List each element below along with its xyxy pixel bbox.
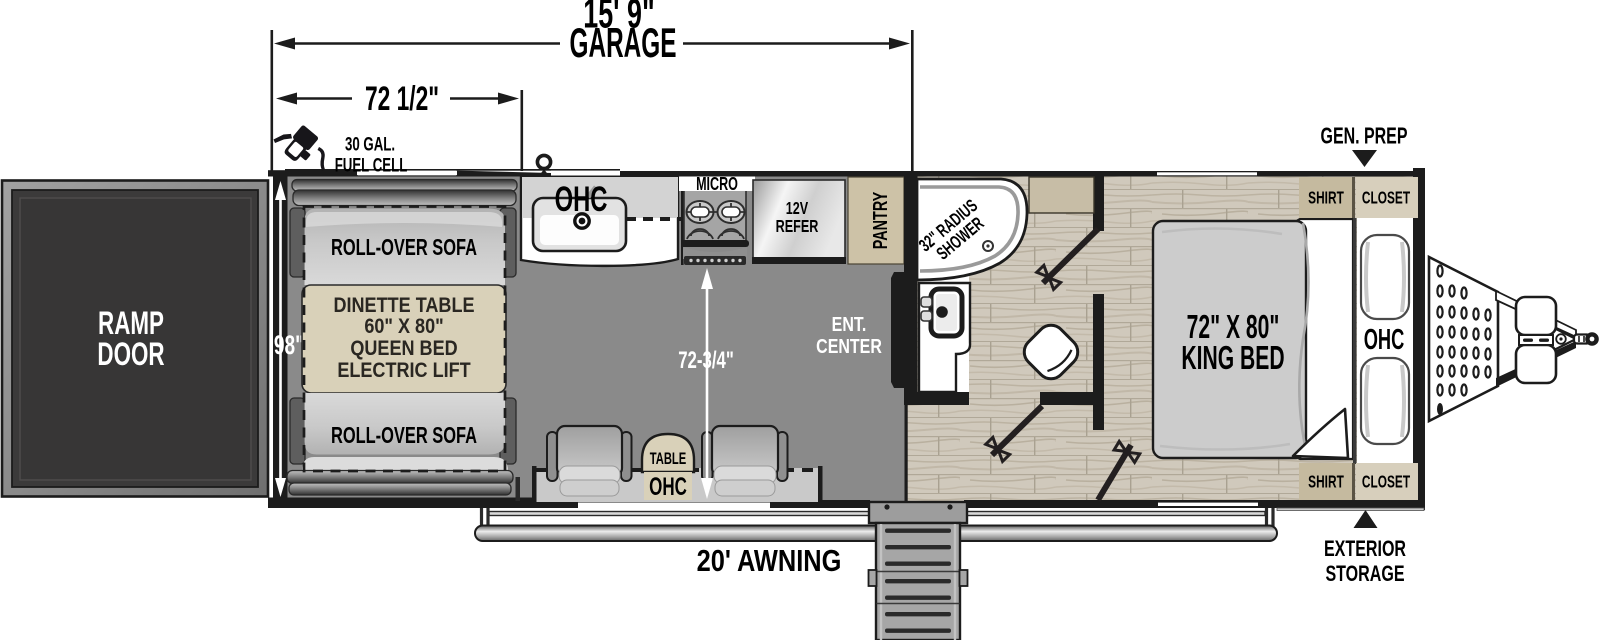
svg-text:CLOSET: CLOSET: [1362, 472, 1411, 492]
svg-text:OHC: OHC: [649, 473, 687, 501]
svg-text:DOOR: DOOR: [97, 336, 164, 372]
svg-text:REFER: REFER: [776, 217, 819, 237]
svg-text:GEN. PREP: GEN. PREP: [1321, 124, 1408, 150]
svg-text:SHIRT: SHIRT: [1308, 188, 1344, 208]
svg-text:EXTERIOR: EXTERIOR: [1324, 538, 1406, 562]
svg-text:60" X 80": 60" X 80": [364, 315, 443, 339]
svg-text:20' AWNING: 20' AWNING: [697, 544, 842, 579]
svg-text:TABLE: TABLE: [650, 449, 687, 468]
svg-text:MICRO: MICRO: [696, 175, 738, 195]
svg-text:PANTRY: PANTRY: [869, 191, 892, 249]
svg-text:98": 98": [274, 330, 304, 360]
svg-text:OHC: OHC: [1364, 324, 1405, 356]
svg-text:ELECTRIC LIFT: ELECTRIC LIFT: [337, 359, 470, 383]
svg-text:FUEL CELL: FUEL CELL: [335, 154, 408, 176]
svg-text:CLOSET: CLOSET: [1362, 188, 1411, 208]
svg-text:OHC: OHC: [555, 181, 608, 220]
svg-text:SHIRT: SHIRT: [1308, 472, 1344, 492]
svg-text:72-3/4": 72-3/4": [678, 347, 734, 374]
svg-text:KING BED: KING BED: [1181, 339, 1284, 376]
svg-text:CENTER: CENTER: [816, 334, 882, 357]
svg-text:72 1/2": 72 1/2": [365, 81, 439, 119]
svg-text:QUEEN BED: QUEEN BED: [350, 337, 457, 361]
svg-text:STORAGE: STORAGE: [1325, 563, 1404, 587]
svg-text:12V: 12V: [786, 199, 809, 219]
svg-text:30 GAL.: 30 GAL.: [345, 133, 395, 155]
svg-text:ROLL-OVER SOFA: ROLL-OVER SOFA: [331, 423, 477, 448]
svg-text:ENT.: ENT.: [832, 312, 867, 335]
svg-text:GARAGE: GARAGE: [570, 20, 677, 66]
svg-text:ROLL-OVER SOFA: ROLL-OVER SOFA: [331, 235, 477, 260]
